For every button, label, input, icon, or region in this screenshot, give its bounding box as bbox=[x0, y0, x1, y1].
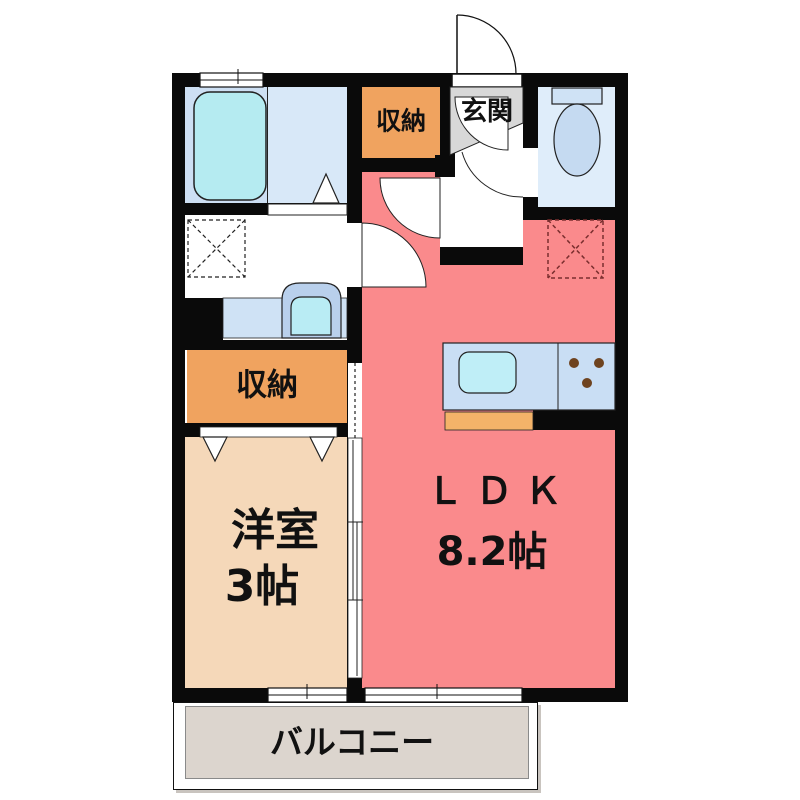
wall-center-vertical bbox=[347, 87, 362, 688]
wall-below-storage-mid bbox=[185, 423, 348, 437]
wall-bathroom-bottom bbox=[185, 203, 347, 215]
wall-kitchen-end bbox=[533, 410, 615, 430]
label-storage-mid: 収納 bbox=[236, 371, 298, 402]
wall-left bbox=[172, 73, 185, 702]
label-entrance: 玄関 bbox=[461, 99, 513, 125]
wall-right bbox=[615, 73, 628, 702]
room-toilet bbox=[538, 87, 615, 207]
label-western-size: 3帖 bbox=[225, 565, 300, 609]
wall-hall-bottom bbox=[440, 247, 523, 265]
wall-toilet-bottom bbox=[523, 207, 628, 220]
wall-below-counter bbox=[185, 340, 362, 350]
room-bathroom-drywing bbox=[267, 87, 348, 203]
label-balcony: バルコニー bbox=[270, 726, 434, 759]
label-storage-top: 収納 bbox=[376, 109, 426, 134]
wall-top bbox=[172, 73, 628, 87]
label-western-room: 洋室 bbox=[231, 509, 319, 553]
wall-toilet-left bbox=[523, 87, 538, 220]
room-ldk-corridor bbox=[362, 172, 440, 688]
wall-bottom bbox=[172, 688, 628, 702]
room-ldk-right bbox=[523, 220, 615, 688]
wall-hall-corner bbox=[435, 155, 455, 177]
floorplan-canvas: 収納 玄関 収納 洋室 3帖 ＬＤＫ 8.2帖 バルコニー bbox=[0, 0, 800, 800]
label-ldk-size: 8.2帖 bbox=[437, 532, 548, 572]
label-ldk: ＬＤＫ bbox=[427, 473, 574, 510]
room-washroom bbox=[185, 215, 347, 300]
